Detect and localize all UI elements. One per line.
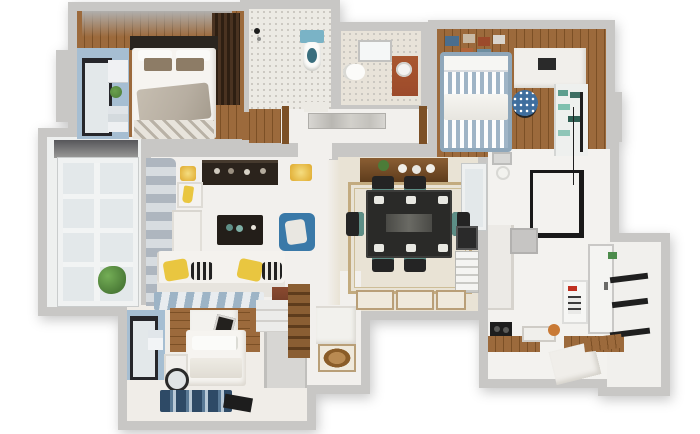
bedroom2-pillows bbox=[192, 336, 238, 350]
balcony-left-beam bbox=[54, 140, 138, 158]
living-console-decor bbox=[214, 168, 220, 174]
living-sconce-left bbox=[180, 166, 196, 181]
dining-sideboard-plates bbox=[398, 164, 407, 173]
kitchen-heater-red-dot bbox=[568, 286, 577, 291]
floorplan-render bbox=[0, 0, 700, 434]
foyer-shoe-cabinet bbox=[288, 284, 310, 358]
opening-bath-main-door bbox=[304, 102, 328, 112]
dining-deco-tile-2 bbox=[396, 290, 434, 310]
master-wall-shelf bbox=[108, 60, 128, 82]
hallway-wall-art bbox=[308, 113, 386, 129]
kids-frame-3 bbox=[478, 37, 490, 46]
kids-book-1 bbox=[558, 90, 568, 96]
kitchen-pendant-light bbox=[498, 168, 508, 178]
bedroom2-linens bbox=[148, 330, 163, 350]
living-table-decor bbox=[226, 224, 233, 231]
dining-table-runner bbox=[386, 214, 432, 232]
bath2-skylight bbox=[358, 40, 392, 62]
balcony-right-door-handle bbox=[604, 282, 608, 290]
living-striped-pillow-2 bbox=[262, 262, 282, 280]
balcony-left-plant bbox=[98, 266, 126, 294]
living-tv-console bbox=[202, 160, 278, 185]
bath-main-shower-head-icon bbox=[254, 28, 260, 34]
kids-ladder-shelf bbox=[580, 92, 583, 152]
wall-tab-right bbox=[606, 92, 622, 142]
master-plant-icon bbox=[110, 86, 122, 98]
living-coffee-table bbox=[217, 215, 263, 245]
dining-black-grid bbox=[456, 226, 478, 250]
dining-radiator bbox=[456, 252, 478, 292]
hallway-door-frame-left bbox=[282, 106, 289, 144]
dining-chair-left bbox=[346, 212, 364, 236]
foyer-white-bench bbox=[316, 306, 356, 344]
bath-main-toilet-seat bbox=[307, 48, 317, 63]
master-brown-pillow-right bbox=[176, 58, 204, 71]
kids-frame-4 bbox=[493, 35, 505, 44]
kids-laptop-icon bbox=[538, 58, 556, 70]
kids-book-5 bbox=[558, 130, 570, 136]
dining-deco-tile-3 bbox=[436, 290, 466, 310]
bedroom2-blanket bbox=[190, 358, 242, 378]
opening-living-dining bbox=[327, 160, 340, 305]
master-ceiling-shadow bbox=[82, 11, 232, 37]
hallway-door-frame-right bbox=[419, 106, 427, 144]
living-yellow-pillow-1 bbox=[162, 258, 189, 282]
bath2-toilet bbox=[343, 64, 365, 80]
kids-frame-2 bbox=[463, 34, 475, 43]
dining-sideboard-plant bbox=[378, 160, 389, 171]
living-striped-pillow-1 bbox=[191, 262, 213, 280]
kitchen-pot-rack-window bbox=[530, 170, 584, 238]
kids-chair-polka bbox=[512, 90, 538, 116]
living-armchair-cushion bbox=[284, 219, 307, 246]
kids-bed-pillow-band bbox=[444, 56, 508, 72]
balcony-right-green-item bbox=[608, 252, 617, 259]
foyer-floor-medallion bbox=[318, 344, 356, 372]
floor-balcony-right bbox=[607, 242, 661, 387]
kids-book-3 bbox=[558, 104, 570, 110]
wall-tab-left bbox=[56, 50, 70, 122]
opening-living-hallway bbox=[298, 140, 332, 159]
kitchen-orange-pot bbox=[548, 324, 560, 336]
master-patterned-throw bbox=[134, 120, 214, 139]
kitchen-stove-burners bbox=[494, 326, 500, 332]
apartment-plan bbox=[0, 0, 700, 434]
dining-deco-tile-1 bbox=[356, 290, 394, 310]
kitchen-ceiling-vent bbox=[492, 152, 512, 165]
master-brown-pillow-left bbox=[144, 58, 172, 71]
kitchen-gray-appliance bbox=[510, 228, 538, 254]
bedroom2-round-mirror bbox=[165, 368, 189, 392]
master-dark-wardrobe bbox=[212, 13, 240, 105]
living-sconce-right bbox=[290, 164, 312, 181]
kitchen-heater-panel bbox=[568, 296, 581, 314]
opening-master-door bbox=[242, 112, 254, 140]
dining-plate-1 bbox=[374, 196, 384, 204]
bath2-sink bbox=[396, 62, 412, 77]
kids-frame-1 bbox=[445, 36, 459, 46]
bedroom2-blue-rug bbox=[160, 390, 232, 412]
kids-bed-white-blanket bbox=[444, 94, 508, 120]
master-linen-stack bbox=[108, 106, 128, 132]
bedroom2-steps bbox=[256, 300, 292, 332]
